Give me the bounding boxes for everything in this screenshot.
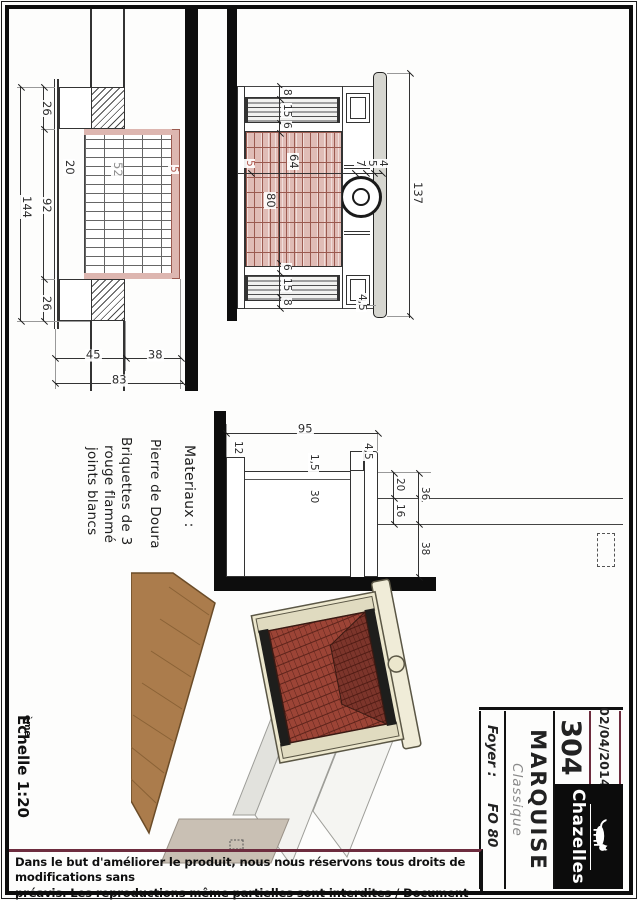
page-border-inner <box>5 5 633 895</box>
drawing-sheet: 137 8 15 6 80 6 15 8 4 5 7 64 5 4,5 <box>0 0 638 900</box>
